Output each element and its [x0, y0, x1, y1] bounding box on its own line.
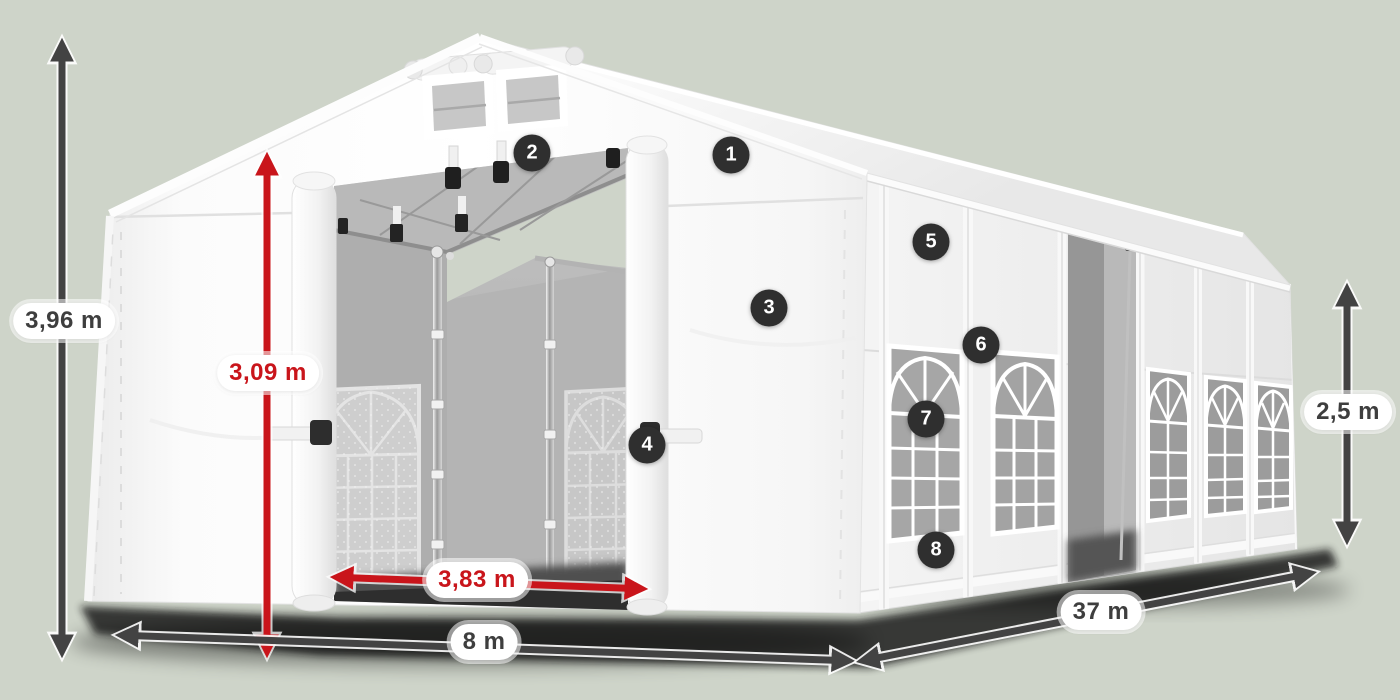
hotspot-badge-8[interactable]: 8 [918, 532, 955, 569]
hotspot-badge-2[interactable]: 2 [514, 135, 551, 172]
hotspot-badge-3[interactable]: 3 [751, 290, 788, 327]
side-window [889, 346, 962, 541]
dimension-label-door-width: 3,83 m [426, 562, 528, 598]
side-window [993, 352, 1057, 534]
dimension-label-total-height: 3,96 m [13, 303, 115, 339]
hotspot-badge-4[interactable]: 4 [629, 427, 666, 464]
dimension-label-door-height: 3,09 m [217, 355, 319, 391]
hotspot-badge-1[interactable]: 1 [713, 137, 750, 174]
dimension-label-side-length: 37 m [1061, 594, 1142, 630]
dimension-label-side-height: 2,5 m [1304, 394, 1392, 430]
side-window [1148, 369, 1189, 521]
hotspot-badge-7[interactable]: 7 [908, 401, 945, 438]
tent-illustration [0, 0, 1400, 700]
side-window [1206, 377, 1245, 516]
door-latch [310, 420, 332, 445]
side-door-opening [1068, 228, 1136, 582]
tent-product-diagram: 3,96 m 3,09 m 3,83 m 8 m 37 m 2,5 m 1 2 … [0, 0, 1400, 700]
front-door-opening [324, 140, 641, 618]
side-window [1256, 383, 1291, 512]
hotspot-badge-6[interactable]: 6 [963, 327, 1000, 364]
dimension-label-front-width: 8 m [451, 624, 518, 660]
hotspot-badge-5[interactable]: 5 [913, 224, 950, 261]
